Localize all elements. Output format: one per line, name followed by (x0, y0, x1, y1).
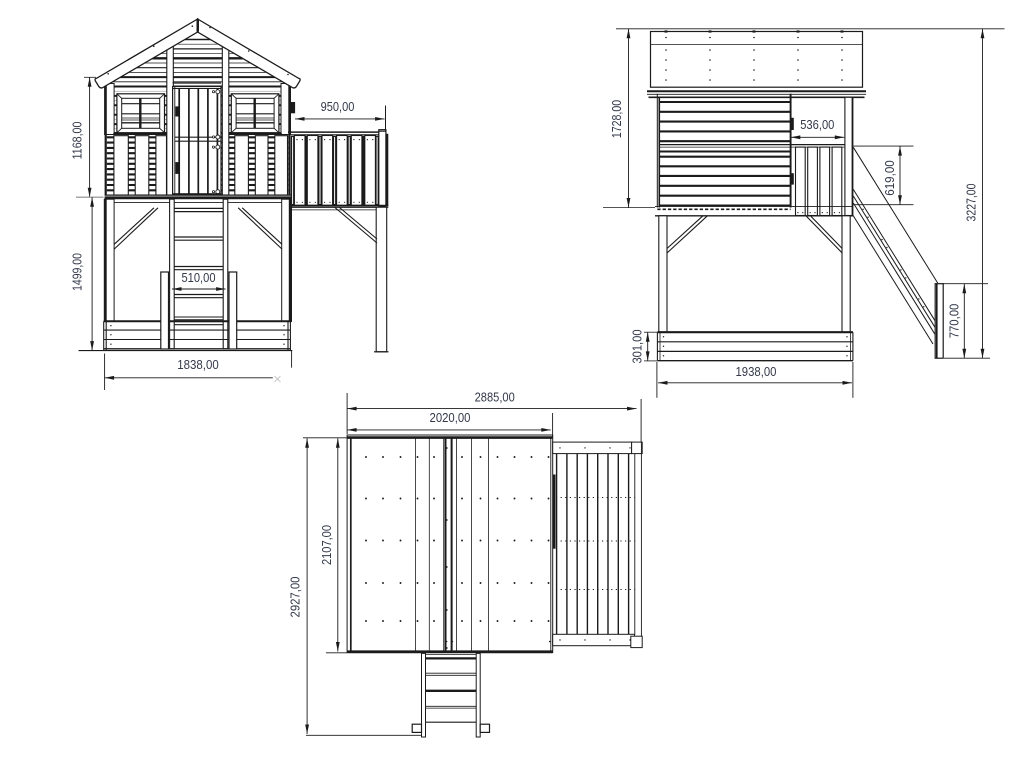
svg-text:1838,00: 1838,00 (177, 357, 219, 372)
svg-text:2885,00: 2885,00 (475, 389, 515, 404)
svg-text:619,00: 619,00 (882, 160, 897, 196)
svg-text:1938,00: 1938,00 (736, 364, 777, 379)
svg-text:1728,00: 1728,00 (609, 100, 624, 138)
svg-text:770,00: 770,00 (947, 304, 962, 339)
svg-text:2107,00: 2107,00 (319, 525, 334, 565)
svg-text:1499,00: 1499,00 (70, 253, 85, 291)
svg-text:950,00: 950,00 (321, 99, 355, 114)
svg-text:2020,00: 2020,00 (430, 410, 471, 425)
svg-text:510,00: 510,00 (182, 270, 216, 285)
svg-text:3227,00: 3227,00 (964, 184, 979, 222)
svg-text:536,00: 536,00 (800, 117, 834, 132)
svg-text:1168,00: 1168,00 (70, 122, 85, 160)
svg-text:301,00: 301,00 (630, 330, 645, 364)
svg-text:2927,00: 2927,00 (287, 577, 302, 618)
